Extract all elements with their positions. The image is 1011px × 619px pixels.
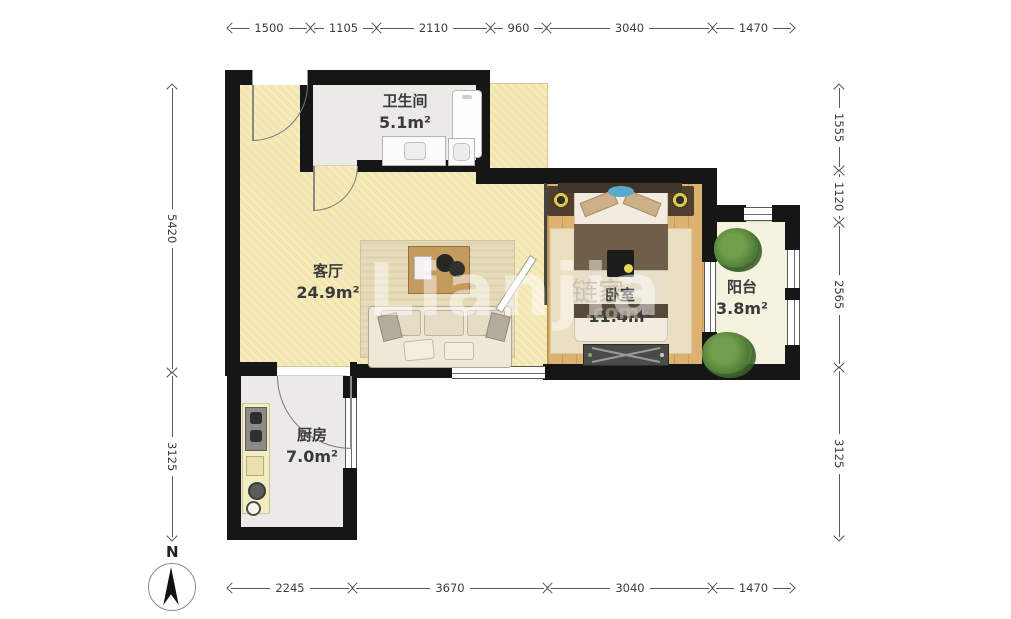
dim-value: 2110 (414, 21, 453, 35)
wall (476, 168, 716, 184)
wall (714, 205, 746, 222)
balcony-label: 阳台 3.8m² (704, 278, 780, 319)
dim-value: 960 (503, 21, 535, 35)
coffee-table-decor (449, 261, 465, 277)
sofa-cushion (424, 310, 464, 336)
stove-burner (250, 412, 262, 424)
dim-bottom-2: 3670 (353, 581, 547, 595)
washing-machine-dial (462, 95, 472, 99)
kitchen-name: 厨房 (272, 426, 352, 446)
living-room-area: 24.9m² (283, 282, 373, 303)
balcony-right-window-lower (787, 300, 800, 345)
dim-value: 1120 (832, 177, 846, 216)
bathroom-door-leaf (313, 166, 315, 210)
lamp-left (552, 191, 570, 209)
dim-value: 1500 (249, 21, 288, 35)
wall (785, 218, 800, 250)
bed-tray-dot (624, 264, 633, 273)
kettle (246, 501, 261, 516)
stove-burner (250, 430, 262, 442)
balcony-top-window (744, 207, 772, 221)
kitchen-area: 7.0m² (272, 446, 352, 467)
floor-plan-canvas: 卫生间 5.1m² 客厅 24.9m² 卧室 11.4m² 阳台 3.8m² 厨… (0, 0, 1011, 619)
tv-console (583, 344, 669, 366)
dim-right-3: 2565 (832, 223, 846, 367)
bed-accent-pillow (608, 186, 634, 197)
plant (702, 332, 756, 378)
coffee-table-tray (414, 256, 432, 280)
wall (350, 362, 357, 376)
cutting-board (246, 456, 264, 476)
dim-value: 1105 (324, 21, 363, 35)
bedroom-name: 卧室 (575, 286, 665, 306)
dim-top-5: 3040 (547, 21, 712, 35)
dim-value: 1555 (832, 108, 846, 147)
dim-value: 3125 (832, 434, 846, 473)
bedroom-label: 卧室 11.4m² (575, 286, 665, 327)
wall (785, 288, 800, 300)
kitchen-label: 厨房 7.0m² (272, 426, 352, 467)
wall (225, 70, 240, 376)
dim-right-2: 1120 (832, 171, 846, 222)
balcony-right-window-upper (787, 250, 800, 288)
dim-value: 3670 (430, 581, 469, 595)
north-label: N (166, 543, 179, 561)
dim-right-1: 1555 (832, 85, 846, 170)
dim-top-1: 1500 (228, 21, 310, 35)
dim-value: 3040 (610, 21, 649, 35)
kitchen-sink (248, 482, 266, 500)
bathroom-sink (404, 142, 426, 160)
living-room-name: 客厅 (283, 262, 373, 282)
dim-bottom-4: 1470 (713, 581, 794, 595)
dim-value: 1470 (734, 21, 773, 35)
tv-console-x-pattern (584, 345, 668, 365)
dim-value: 2565 (832, 275, 846, 314)
dim-bottom-3: 3040 (548, 581, 712, 595)
dim-value: 3040 (610, 581, 649, 595)
dim-top-2: 1105 (311, 21, 376, 35)
bedroom-area: 11.4m² (575, 306, 665, 327)
dim-value: 3125 (165, 437, 179, 476)
wall (225, 362, 277, 376)
toilet-bowl (453, 143, 470, 161)
plant (714, 228, 762, 272)
dim-bottom-1: 2245 (228, 581, 352, 595)
bathroom-name: 卫生间 (360, 92, 450, 112)
wall (227, 376, 241, 540)
dim-right-4: 3125 (832, 368, 846, 540)
balcony-name: 阳台 (704, 278, 780, 298)
sofa-seat-pillow (444, 342, 474, 360)
dim-top-3: 2110 (377, 21, 490, 35)
living-room-label: 客厅 24.9m² (283, 262, 373, 303)
dim-top-6: 1470 (713, 21, 794, 35)
wall (343, 468, 357, 529)
dim-value: 1470 (734, 581, 773, 595)
lamp-right (671, 191, 689, 209)
dim-left-2: 3125 (165, 373, 179, 540)
dim-value: 5420 (165, 209, 179, 248)
bathroom-label: 卫生间 5.1m² (360, 92, 450, 133)
bathroom-area: 5.1m² (360, 112, 450, 133)
wall (227, 527, 357, 540)
entry-door-leaf (252, 85, 254, 140)
sofa-seat-pillow (403, 338, 435, 361)
balcony-area: 3.8m² (704, 298, 780, 319)
dim-value: 2245 (270, 581, 309, 595)
dim-left-1: 5420 (165, 85, 179, 372)
dim-top-4: 960 (491, 21, 546, 35)
entry-door-opening (252, 70, 308, 85)
